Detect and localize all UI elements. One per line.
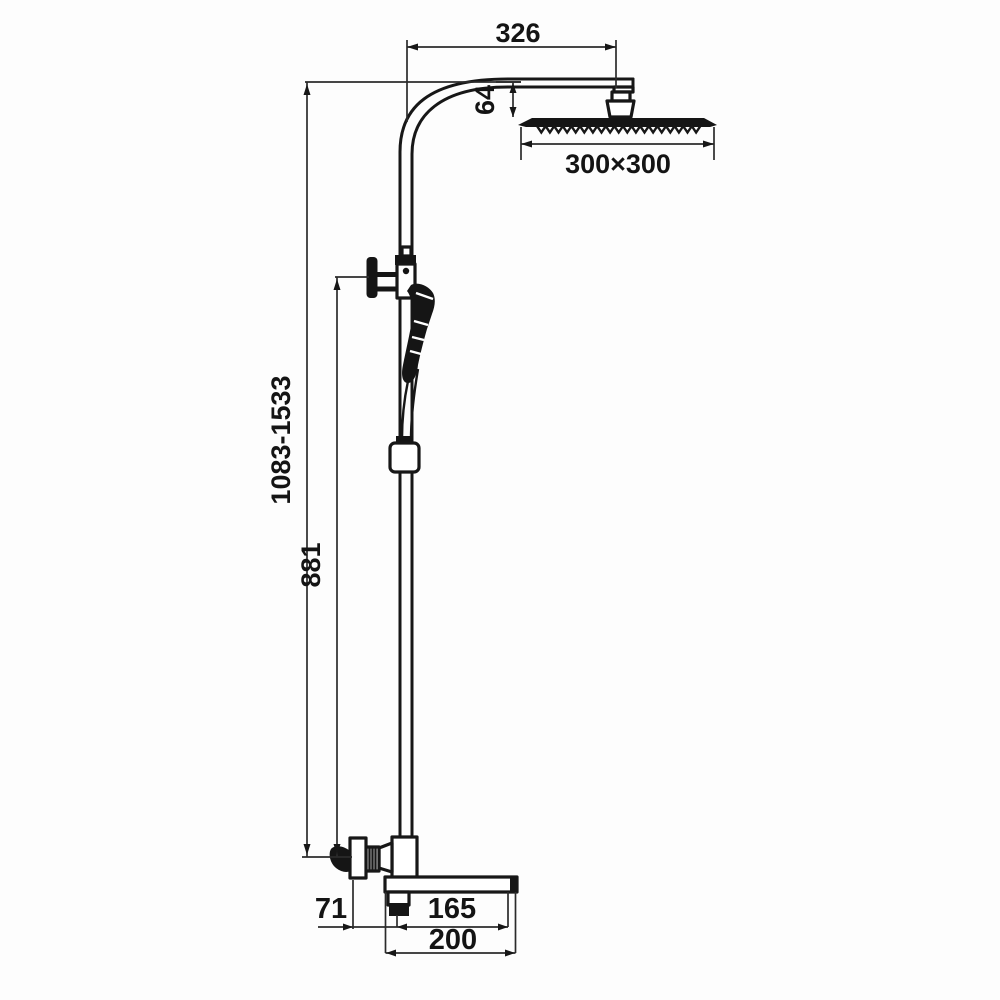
rain-shower-head <box>518 118 717 133</box>
dim-300x300: 300×300 <box>521 127 714 179</box>
valve-handle <box>330 846 350 872</box>
dim-label-arm-reach: 326 <box>495 18 540 48</box>
dim-label-head-drop: 64 <box>470 85 500 115</box>
shower-system-dimension-drawing: 326 64 300×300 1083-1533 <box>0 0 1000 1000</box>
dim-label-column-height-range: 1083-1533 <box>266 375 296 504</box>
shower-arm <box>400 79 633 197</box>
wall-escutcheon <box>350 838 366 878</box>
dim-label-spout-wall-offset: 71 <box>315 893 347 925</box>
dim-label-slide-bar-height: 881 <box>296 542 326 587</box>
dim-label-head-size: 300×300 <box>565 149 671 179</box>
dim-326: 326 <box>407 18 616 122</box>
head-connector <box>607 92 634 117</box>
technical-drawing-sheet: 326 64 300×300 1083-1533 <box>0 0 1000 1000</box>
slider-block <box>390 436 419 472</box>
dim-64: 64 <box>470 82 521 117</box>
dim-label-spout-length: 200 <box>429 924 477 956</box>
dim-label-spout-reach: 165 <box>428 893 476 925</box>
